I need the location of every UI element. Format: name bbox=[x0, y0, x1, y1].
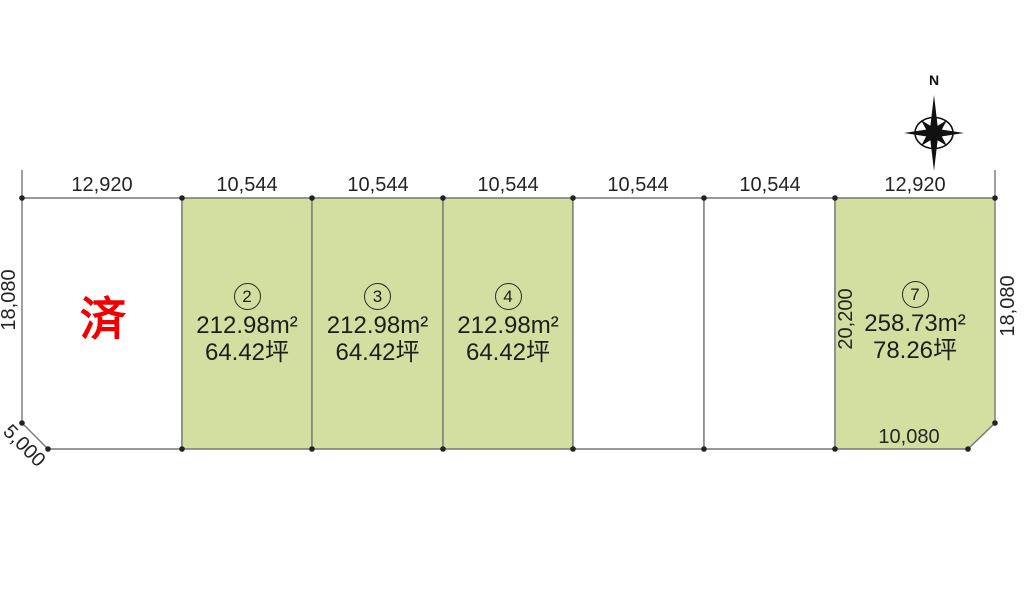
dim-top-3: 10,544 bbox=[448, 174, 568, 196]
dim-top-4: 10,544 bbox=[578, 174, 698, 196]
dim-top-0: 12,920 bbox=[42, 174, 162, 196]
north-label: N bbox=[924, 72, 944, 88]
compass-icon bbox=[904, 95, 964, 171]
dim-top-2: 10,544 bbox=[318, 174, 438, 196]
lot-2-number: 2 bbox=[234, 283, 261, 310]
lot-4-label: 4 212.98m² 64.42坪 bbox=[443, 283, 573, 366]
lot-3-tsubo: 64.42坪 bbox=[312, 339, 443, 366]
dim-top-5: 10,544 bbox=[710, 174, 830, 196]
lot-3-area: 212.98m² bbox=[312, 312, 443, 339]
lot-4-area: 212.98m² bbox=[443, 312, 573, 339]
lot-6-shape bbox=[704, 198, 835, 449]
lot-7-number: 7 bbox=[902, 281, 929, 308]
lot-3-number: 3 bbox=[364, 283, 391, 310]
lot-2-tsubo: 64.42坪 bbox=[182, 339, 312, 366]
dim-right-height: 18,080 bbox=[998, 266, 1018, 346]
lot-1-status: 済 bbox=[55, 294, 151, 344]
lot-4-number: 4 bbox=[495, 283, 522, 310]
dim-left-height: 18,080 bbox=[0, 260, 19, 340]
lot-7-tsubo: 78.26坪 bbox=[840, 337, 990, 364]
dim-lot7-bottom: 10,080 bbox=[869, 427, 949, 447]
lot-7-label: 7 258.73m² 78.26坪 bbox=[840, 281, 990, 364]
lot-2-label: 2 212.98m² 64.42坪 bbox=[182, 283, 312, 366]
lot-5-shape bbox=[573, 198, 704, 449]
dim-top-1: 10,544 bbox=[187, 174, 307, 196]
lot-2-area: 212.98m² bbox=[182, 312, 312, 339]
dim-top-6: 12,920 bbox=[855, 174, 975, 196]
lot-7-area: 258.73m² bbox=[840, 310, 990, 337]
site-plan: N 12,920 10,544 10,544 10,544 10,544 10,… bbox=[0, 0, 1024, 616]
lot-4-tsubo: 64.42坪 bbox=[443, 339, 573, 366]
lot-3-label: 3 212.98m² 64.42坪 bbox=[312, 283, 443, 366]
